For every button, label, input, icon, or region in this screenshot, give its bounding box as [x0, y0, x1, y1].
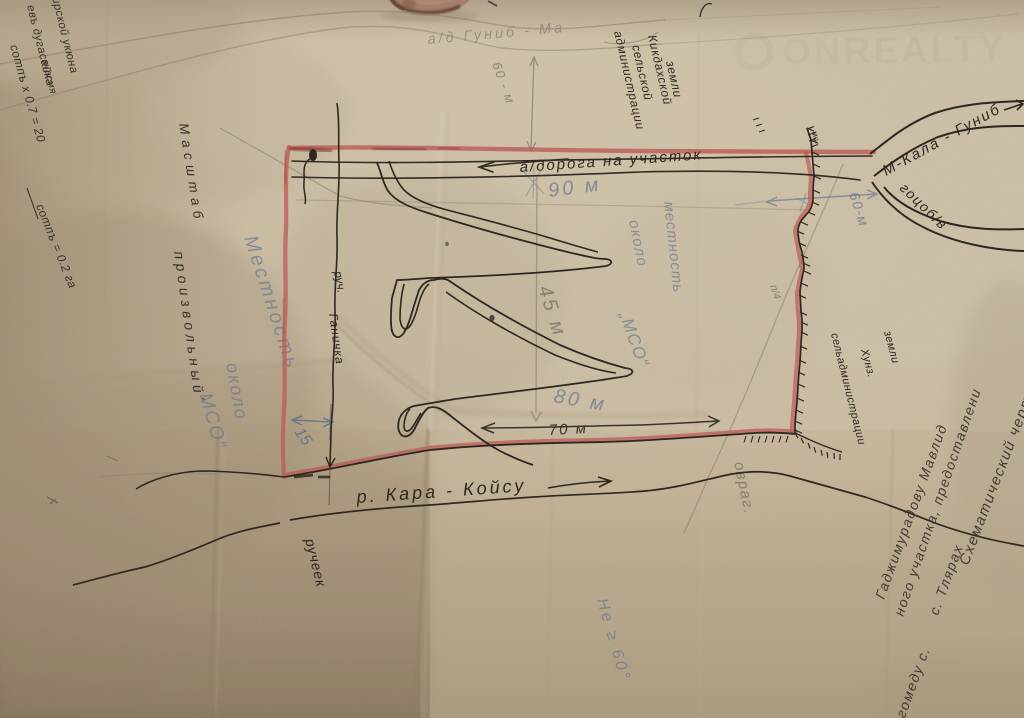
svg-text:70 м: 70 м — [548, 420, 588, 439]
svg-text:ONREALTY: ONREALTY — [782, 28, 1007, 73]
